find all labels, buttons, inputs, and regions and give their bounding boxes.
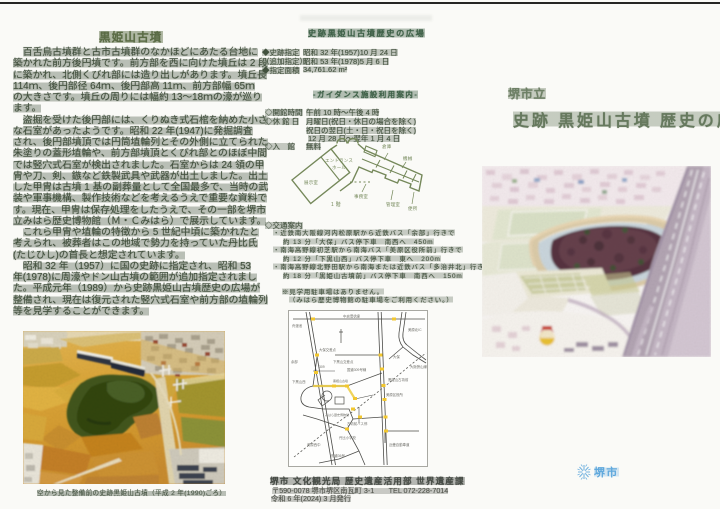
svg-text:国道309号線: 国道309号線 xyxy=(347,367,367,372)
svg-text:エントランス: エントランス xyxy=(325,158,353,164)
svg-text:1 階: 1 階 xyxy=(331,201,341,208)
svg-text:便所: 便所 xyxy=(408,205,418,212)
svg-text:みはら歴史博物館: みはら歴史博物館 xyxy=(325,412,349,417)
svg-text:大保交差点: 大保交差点 xyxy=(319,347,337,352)
svg-text:丹比小学校: 丹比小学校 xyxy=(339,435,357,440)
svg-text:府道36号: 府道36号 xyxy=(331,453,346,458)
svg-text:下黒山西: 下黒山西 xyxy=(292,379,306,384)
svg-text:舟渡池: 舟渡池 xyxy=(292,323,303,328)
svg-text:余部: 余部 xyxy=(291,359,298,364)
svg-text:黒姫山古墳: 黒姫山古墳 xyxy=(333,378,348,383)
svg-text:美原西中: 美原西中 xyxy=(307,442,321,447)
svg-text:美原区役所: 美原区役所 xyxy=(386,392,404,397)
svg-text:大阪狭山線: 大阪狭山線 xyxy=(410,364,428,369)
svg-text:ホール: ホール xyxy=(332,165,346,170)
svg-text:事務室: 事務室 xyxy=(354,193,368,200)
svg-text:機械: 機械 xyxy=(403,155,413,162)
svg-text:中央環状線: 中央環状線 xyxy=(343,314,361,319)
svg-text:管理室: 管理室 xyxy=(386,201,400,208)
svg-text:美原北IC: 美原北IC xyxy=(408,327,422,332)
svg-text:展示室: 展示室 xyxy=(304,179,318,186)
svg-text:倉庫: 倉庫 xyxy=(382,143,392,150)
svg-text:309: 309 xyxy=(319,365,325,369)
svg-text:近畿自動車道: 近畿自動車道 xyxy=(389,442,410,447)
svg-text:大保: 大保 xyxy=(393,354,400,359)
svg-text:黒姫山古墳前: 黒姫山古墳前 xyxy=(388,377,409,382)
svg-text:古墳前バス停: 古墳前バス停 xyxy=(347,421,368,426)
svg-text:堺市: 堺市 xyxy=(594,465,618,479)
svg-text:下黒山交差点: 下黒山交差点 xyxy=(333,359,354,364)
